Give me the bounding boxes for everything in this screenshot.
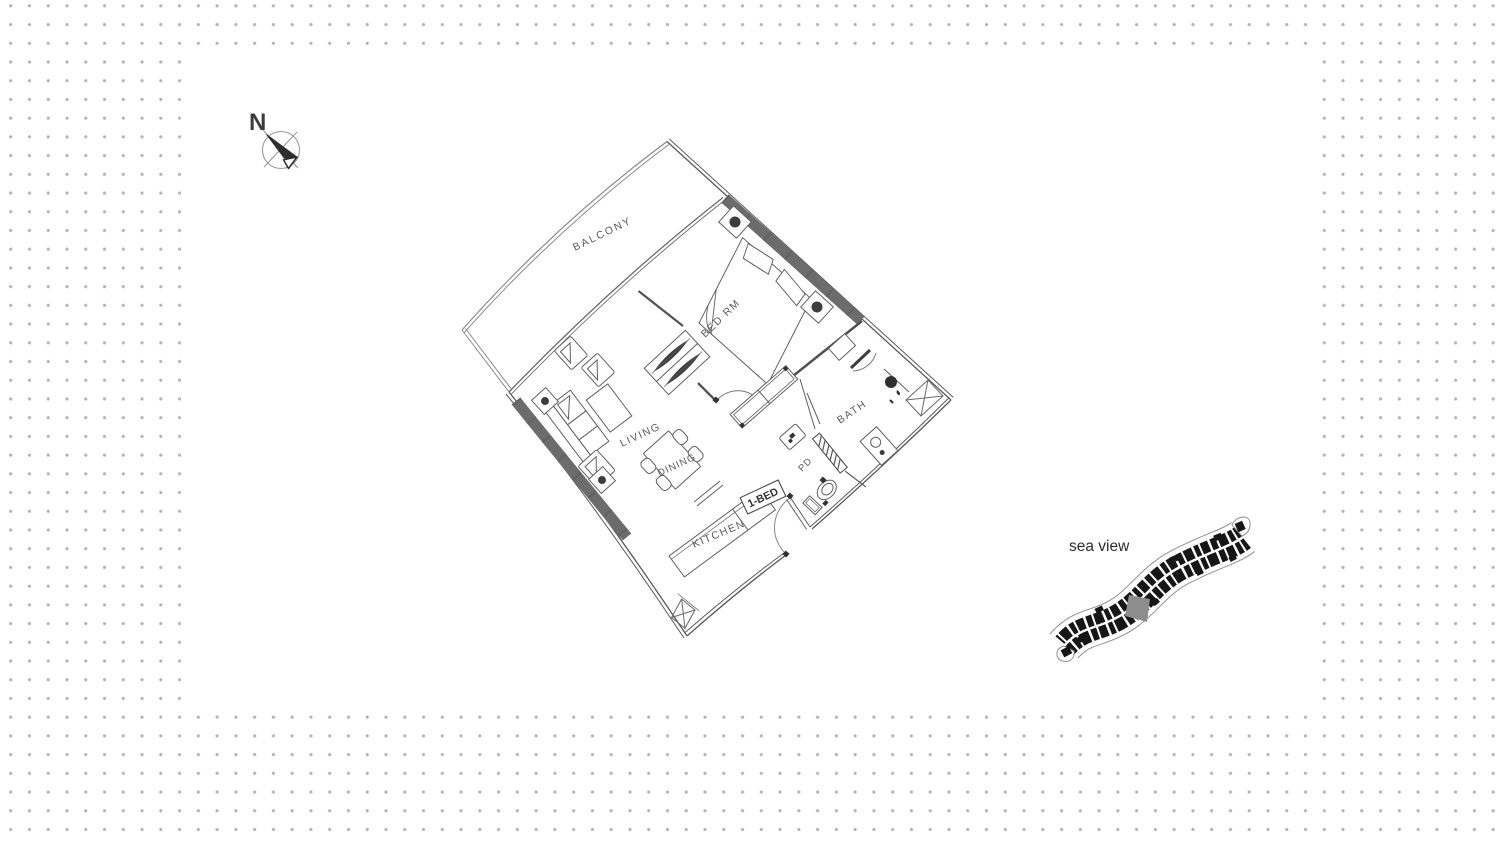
svg-text:BATH: BATH — [835, 398, 869, 427]
svg-text:sea view: sea view — [1069, 538, 1130, 555]
svg-text:PD: PD — [796, 456, 815, 475]
svg-text:N: N — [249, 109, 266, 136]
svg-text:BALCONY: BALCONY — [571, 215, 634, 254]
